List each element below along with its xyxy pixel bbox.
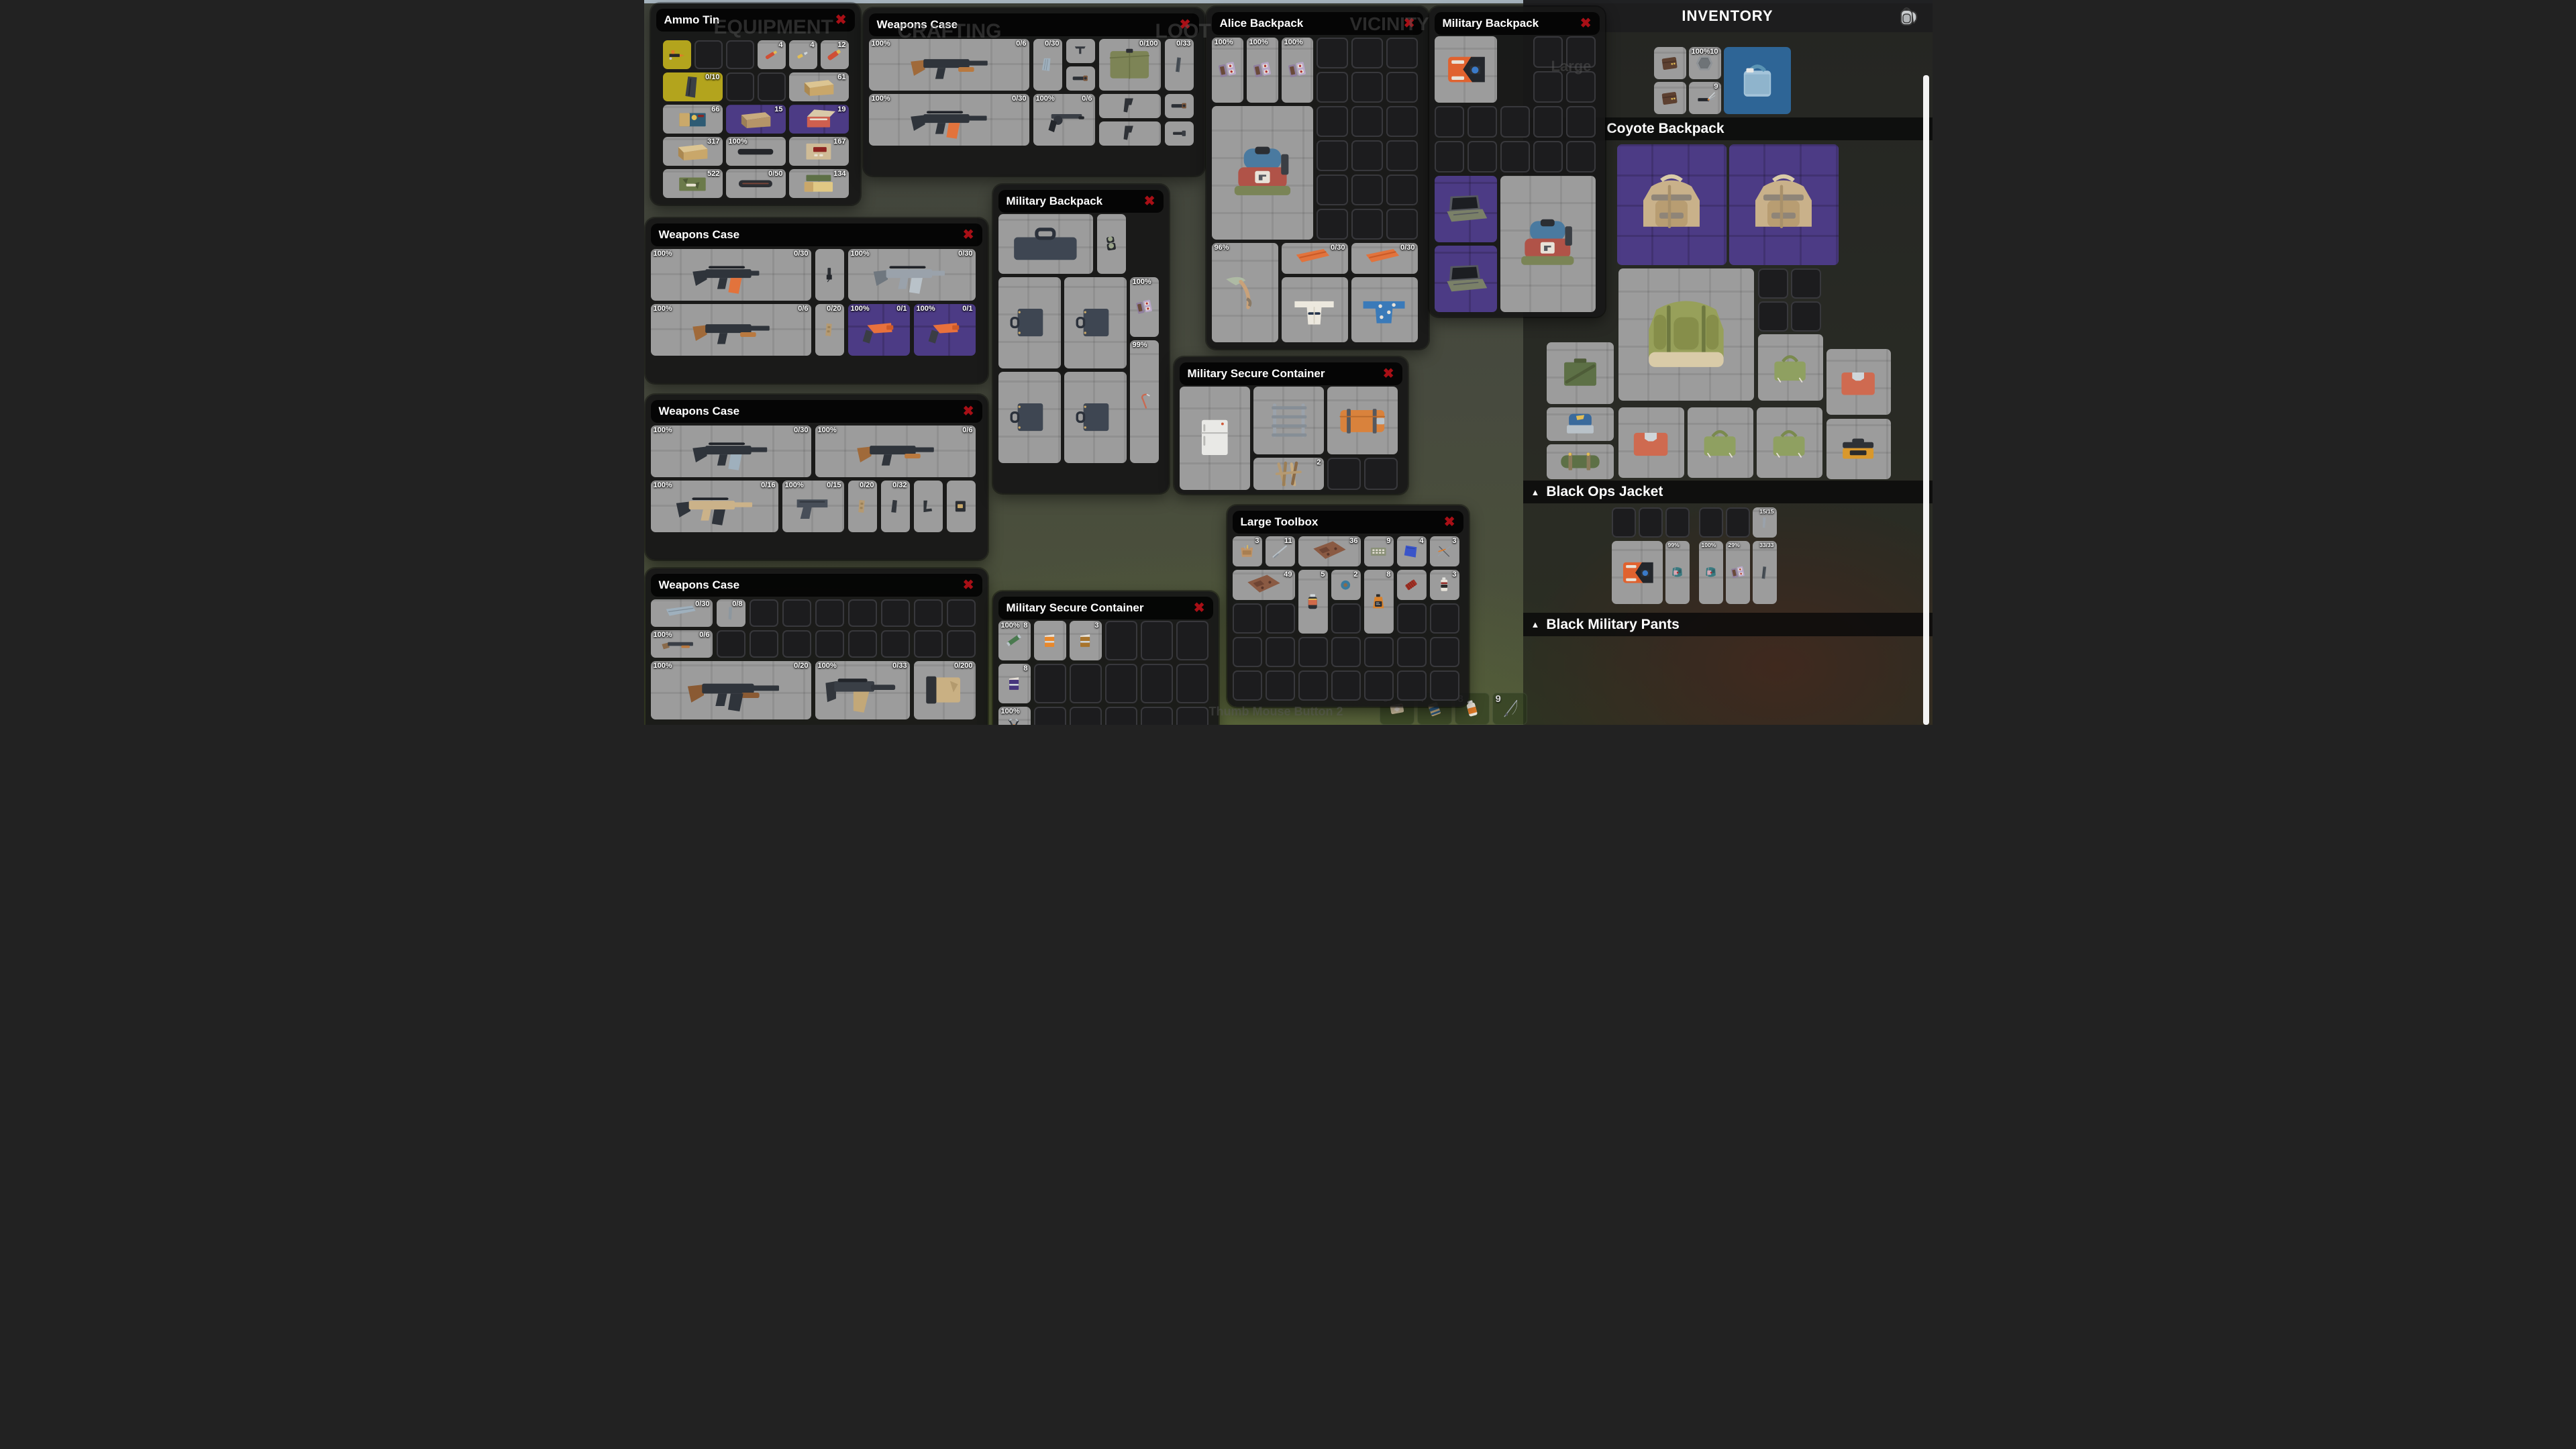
empty-slot[interactable]	[1566, 141, 1596, 172]
empty-slot[interactable]	[758, 72, 786, 101]
teal-pack-slot[interactable]: 100%	[1699, 541, 1723, 604]
close-icon[interactable]: ✖	[835, 13, 847, 27]
candy-orange-slot[interactable]	[1034, 621, 1066, 660]
empty-slot[interactable]	[1758, 268, 1788, 299]
empty-slot[interactable]	[1298, 637, 1328, 667]
count-label: 0/1	[962, 305, 972, 313]
bedroll-slot[interactable]	[1547, 444, 1614, 479]
flare-gun-slot[interactable]: 100%0/1	[914, 304, 976, 356]
rangefinder-icon	[664, 42, 690, 68]
empty-slot[interactable]	[1566, 71, 1596, 103]
count-label: 33/33	[1759, 542, 1773, 548]
mag-long-icon	[1753, 544, 1775, 601]
scope-slot[interactable]	[1165, 94, 1194, 118]
empty-slot[interactable]	[694, 40, 723, 69]
wallet-slot[interactable]	[1654, 82, 1686, 114]
empty-slot[interactable]	[717, 630, 745, 658]
briefcase-flat-icon	[1002, 217, 1089, 272]
close-icon[interactable]: ✖	[1194, 601, 1205, 615]
empty-slot[interactable]	[1317, 174, 1348, 205]
empty-slot[interactable]	[1612, 507, 1636, 538]
close-icon[interactable]: ✖	[1383, 367, 1394, 381]
mag-gray-straight-slot[interactable]: 0/8	[717, 599, 745, 627]
briefcase-slot[interactable]	[1064, 277, 1127, 368]
mag-tan-slot[interactable]: 0/20	[815, 304, 844, 356]
empty-slot[interactable]	[1665, 507, 1690, 538]
count-label: 66	[711, 105, 719, 113]
suppressor-slot[interactable]: 100%	[726, 137, 786, 166]
count-label: 0/33	[892, 662, 907, 670]
revolver-slot[interactable]: 100%0/6	[1033, 94, 1095, 146]
empty-slot[interactable]	[815, 630, 844, 658]
empty-slot[interactable]	[1351, 209, 1383, 240]
section-title: Coyote Backpack	[1607, 121, 1724, 137]
shirt-hawaiian-slot[interactable]	[1351, 277, 1418, 342]
window-header[interactable]: Alice Backpack✖	[1212, 12, 1423, 35]
empty-slot[interactable]	[1351, 174, 1383, 205]
empty-slot[interactable]	[1639, 507, 1663, 538]
med-cooler-slot[interactable]	[1612, 541, 1663, 604]
empty-slot[interactable]	[1386, 38, 1418, 68]
empty-slot[interactable]	[782, 599, 811, 627]
empty-slot[interactable]	[1327, 458, 1361, 490]
medkit-slot[interactable]: 100%	[1212, 38, 1243, 103]
empty-slot[interactable]	[1397, 603, 1427, 634]
fridge-slot[interactable]	[1180, 387, 1250, 490]
empty-slot[interactable]	[848, 599, 877, 627]
ak-pistol-slot[interactable]: 100%0/30	[651, 249, 811, 301]
empty-slot[interactable]	[1566, 36, 1596, 68]
empty-slot[interactable]	[1351, 38, 1383, 68]
empty-slot[interactable]	[1070, 707, 1102, 725]
quality-label: 100%	[818, 662, 837, 670]
flare-gun-icon	[916, 306, 973, 354]
shotgun-wood-icon	[875, 41, 1023, 89]
empty-slot[interactable]	[1141, 664, 1173, 703]
weapons-case-2-window: Weapons Case✖100%0/30100%0/30100%0/60/20…	[646, 218, 988, 383]
med-cooler-slot[interactable]	[1435, 36, 1497, 103]
empty-slot[interactable]	[1141, 621, 1173, 660]
empty-slot[interactable]	[1351, 140, 1383, 171]
crowbar-slot[interactable]: 99%	[1130, 340, 1159, 463]
whiskey-icon	[1365, 572, 1392, 631]
empty-slot[interactable]	[1500, 141, 1530, 172]
empty-slot[interactable]	[1386, 174, 1418, 205]
vector-slot[interactable]: 100%0/33	[815, 661, 910, 719]
count-label: 4	[778, 41, 782, 49]
flashlight-slot[interactable]	[1165, 121, 1194, 146]
pliers-slot[interactable]: 100%	[998, 707, 1031, 725]
ammo-box-blue-slot[interactable]: 66	[663, 105, 723, 134]
empty-slot[interactable]	[750, 630, 778, 658]
grip-icon	[1101, 95, 1158, 117]
teal-pack-icon	[1666, 544, 1688, 601]
empty-slot[interactable]	[914, 630, 943, 658]
mag-orange-slot[interactable]: 0/30	[1282, 243, 1348, 274]
medkit-slot[interactable]: 100%	[1282, 38, 1313, 103]
ammo-box-red-slot[interactable]: 19	[789, 105, 849, 134]
fal-icon	[657, 663, 805, 717]
count-label: 0/6	[798, 305, 808, 313]
backpack-coyote-slot[interactable]	[1729, 144, 1839, 265]
count-label: 15/15	[1759, 508, 1773, 515]
empty-slot[interactable]	[1533, 71, 1563, 103]
shelf-icon	[1256, 389, 1321, 452]
empty-slot[interactable]	[881, 599, 910, 627]
quality-label: 100%	[872, 95, 890, 103]
section-header-black-military-pants[interactable]: ▲Black Military Pants	[1523, 613, 1933, 636]
empty-slot[interactable]	[1758, 301, 1788, 332]
empty-slot[interactable]	[1500, 106, 1530, 138]
weapons-case-1-window: Weapons Case✖100%0/60/300/1000/33100%0/3…	[864, 8, 1204, 176]
tape-slot[interactable]: 2	[1331, 570, 1361, 600]
close-icon[interactable]: ✖	[1404, 17, 1415, 30]
mag-gray-slot[interactable]: 0/30	[1033, 39, 1062, 91]
mag-long-icon	[1166, 41, 1192, 89]
quality-label: 100%	[1215, 38, 1233, 46]
empty-slot[interactable]	[782, 630, 811, 658]
quality-label: 100%	[851, 305, 870, 313]
briefcase-slot[interactable]	[1064, 372, 1127, 463]
sidebar-scrollbar[interactable]	[1923, 75, 1929, 725]
robe-slot[interactable]	[1282, 277, 1348, 342]
empty-slot[interactable]	[1435, 141, 1464, 172]
empty-slot[interactable]	[1430, 603, 1459, 634]
hex-item-slot[interactable]: 100%10	[1689, 47, 1721, 79]
empty-slot[interactable]	[1364, 637, 1394, 667]
wood-scraps-slot[interactable]: 2	[1253, 458, 1324, 490]
empty-slot[interactable]	[1351, 72, 1383, 103]
collapse-icon[interactable]: ▲	[1531, 619, 1540, 630]
fishing-rod-slot[interactable]: 9	[1492, 693, 1527, 725]
mag-black-slot[interactable]: 0/32	[881, 481, 910, 532]
empty-slot[interactable]	[1386, 72, 1418, 103]
medkit-slot[interactable]: 100%	[1130, 277, 1159, 337]
crowbar-icon	[1131, 345, 1157, 458]
shell-big-slot[interactable]: 12	[821, 40, 849, 69]
window-title: Weapons Case	[659, 579, 740, 592]
candy-brown-slot[interactable]: 3	[1070, 621, 1102, 660]
empty-slot[interactable]	[1397, 637, 1427, 667]
shotgun-wood-slot[interactable]: 100%0/6	[815, 426, 976, 477]
rangefinder-slot[interactable]	[663, 40, 691, 69]
rod-slot[interactable]: 11	[1266, 536, 1295, 566]
empty-slot[interactable]	[1791, 301, 1821, 332]
count-label: 3	[1452, 537, 1456, 545]
ammo-can-slot[interactable]	[1547, 342, 1614, 404]
candy-orange-icon	[1035, 622, 1064, 658]
empty-slot[interactable]	[1233, 670, 1262, 701]
empty-slot[interactable]	[1726, 507, 1750, 538]
count-label: 0/100	[1139, 40, 1158, 48]
empty-slot[interactable]	[1105, 707, 1137, 725]
scythe-icon	[1214, 247, 1275, 338]
quality-label: 100%	[1692, 48, 1710, 56]
empty-slot[interactable]	[1791, 268, 1821, 299]
cooler-red-slot[interactable]	[1618, 407, 1684, 478]
wallet-slot[interactable]	[1654, 47, 1686, 79]
carbine-icon	[657, 428, 805, 475]
count-label: 0/30	[1400, 244, 1414, 252]
shell-red-slot[interactable]: 4	[758, 40, 786, 69]
mag-orange-slot[interactable]: 0/30	[1351, 243, 1418, 274]
scope-slot[interactable]	[1066, 66, 1095, 91]
count-label: 0/30	[695, 600, 709, 608]
laptop-slot[interactable]	[1435, 246, 1497, 312]
flare-green-slot[interactable]: 100%8	[998, 621, 1031, 660]
fal-slot[interactable]: 100%0/20	[651, 661, 811, 719]
close-icon[interactable]: ✖	[1180, 18, 1191, 32]
empty-slot[interactable]	[1317, 106, 1348, 137]
duffel-icon	[1690, 410, 1750, 475]
empty-slot[interactable]	[1266, 603, 1295, 634]
medkit-slot[interactable]: 100%	[1247, 38, 1278, 103]
sawnoff-slot[interactable]: 100%0/6	[651, 630, 713, 658]
toolbox-yellow-icon	[1828, 421, 1888, 477]
med-backpack-slot[interactable]	[1500, 176, 1596, 312]
empty-slot[interactable]	[1533, 106, 1563, 138]
drum-tan-slot[interactable]: 0/200	[914, 661, 976, 719]
empty-slot[interactable]	[815, 599, 844, 627]
mag-long-slot[interactable]: 0/33	[1165, 39, 1194, 91]
empty-slot[interactable]	[1351, 106, 1383, 137]
empty-slot[interactable]	[1364, 458, 1398, 490]
empty-slot[interactable]	[1105, 664, 1137, 703]
empty-slot[interactable]	[1331, 637, 1361, 667]
carbine-slot[interactable]: 100%0/30	[651, 426, 811, 477]
window-header[interactable]: Weapons Case✖	[651, 223, 982, 246]
multitool-slot[interactable]: 9	[1689, 82, 1721, 114]
empty-slot[interactable]	[1533, 141, 1563, 172]
metal-sheet-slot[interactable]: 49	[1233, 570, 1295, 600]
ak-rifle-slot[interactable]: 100%0/30	[869, 94, 1029, 146]
empty-slot[interactable]	[1317, 209, 1348, 240]
window-header[interactable]: Military Backpack✖	[1435, 12, 1600, 35]
duffel-icon	[1759, 410, 1819, 475]
empty-slot[interactable]	[750, 599, 778, 627]
quality-label: 100%	[917, 305, 935, 313]
empty-slot[interactable]	[947, 599, 976, 627]
empty-slot[interactable]	[1331, 670, 1361, 701]
flare-gun-slot[interactable]: 100%0/1	[848, 304, 910, 356]
briefcase-icon	[1000, 281, 1058, 364]
metal-sheet-slot[interactable]: 36	[1298, 536, 1361, 566]
candy-purple-slot[interactable]: 8	[998, 664, 1031, 703]
empty-slot[interactable]	[881, 630, 910, 658]
duffel-slot[interactable]	[1688, 407, 1753, 478]
quality-label: 100%	[654, 305, 672, 313]
empty-slot[interactable]	[1430, 670, 1459, 701]
empty-slot[interactable]	[1070, 664, 1102, 703]
grip-slot[interactable]	[1099, 121, 1161, 146]
weapons-case-3-window: Weapons Case✖100%0/30100%0/6100%0/16100%…	[646, 395, 988, 560]
collapse-icon[interactable]: ▲	[1531, 487, 1540, 497]
empty-slot[interactable]	[1233, 637, 1262, 667]
window-header[interactable]: Military Backpack✖	[998, 190, 1164, 213]
close-icon[interactable]: ✖	[1444, 515, 1455, 529]
empty-slot[interactable]	[1435, 106, 1464, 138]
bullet-slot[interactable]: 4	[789, 40, 817, 69]
bipod-slot[interactable]	[1066, 39, 1095, 63]
window-header[interactable]: Large Toolbox✖	[1233, 511, 1463, 534]
empty-slot[interactable]	[848, 630, 877, 658]
shotgun-wood-slot[interactable]: 100%0/6	[651, 304, 811, 356]
shelf-slot[interactable]	[1253, 387, 1324, 454]
empty-slot[interactable]	[1176, 707, 1208, 725]
mag-long-slot[interactable]: 33/33	[1753, 541, 1777, 604]
empty-slot[interactable]	[914, 599, 943, 627]
empty-slot[interactable]	[1467, 106, 1497, 138]
laser-box-slot[interactable]	[947, 481, 976, 532]
tarp-slot[interactable]: 4	[1397, 536, 1427, 566]
box-cardboard-slot[interactable]: 15	[726, 105, 786, 134]
empty-slot[interactable]	[726, 72, 754, 101]
medkit-slot[interactable]: 29%	[1726, 541, 1750, 604]
empty-slot[interactable]	[1105, 621, 1137, 660]
empty-slot[interactable]	[1176, 621, 1208, 660]
window-header[interactable]: Weapons Case✖	[651, 400, 982, 423]
empty-slot[interactable]	[1467, 141, 1497, 172]
empty-slot[interactable]	[1176, 664, 1208, 703]
count-label: 3	[1094, 621, 1098, 630]
dynamite-icon	[1398, 571, 1425, 599]
empty-slot[interactable]	[1364, 670, 1394, 701]
jug-slot[interactable]	[1724, 47, 1791, 114]
laptop-slot[interactable]	[1435, 176, 1497, 242]
mag-dark-slot[interactable]: 0/10	[663, 72, 723, 101]
window-header[interactable]: Ammo Tin✖	[656, 9, 855, 32]
alice-backpack-window: Alice Backpack✖100%100%100%96%0/300/30	[1206, 7, 1429, 349]
briefcase-slot[interactable]	[998, 372, 1061, 463]
window-header[interactable]: Weapons Case✖	[651, 574, 982, 597]
empty-slot[interactable]	[1430, 637, 1459, 667]
tube-slot[interactable]: 0/50	[726, 169, 786, 198]
window-header[interactable]: Military Secure Container✖	[998, 597, 1213, 619]
empty-slot[interactable]	[1233, 603, 1262, 634]
empty-slot[interactable]	[1331, 603, 1361, 634]
ammo-crate-slot[interactable]: 317	[663, 137, 723, 166]
empty-slot[interactable]	[1266, 670, 1295, 701]
dynamite-slot[interactable]	[1397, 570, 1427, 600]
section-header-black-ops-jacket[interactable]: ▲Black Ops Jacket	[1523, 481, 1933, 503]
tool-pouch-slot[interactable]: 3	[1233, 536, 1262, 566]
window-header[interactable]: Weapons Case✖	[869, 13, 1199, 36]
flare-gun-icon	[850, 306, 907, 354]
briefcase-slot[interactable]	[998, 277, 1061, 368]
empty-slot[interactable]	[1298, 670, 1328, 701]
rifle-tan-icon	[656, 483, 773, 530]
tool-vert-slot[interactable]	[815, 249, 844, 301]
cooler-blue-slot[interactable]	[1547, 407, 1614, 441]
empty-slot[interactable]	[1317, 140, 1348, 171]
empty-slot[interactable]	[1141, 707, 1173, 725]
count-label: 36	[1349, 537, 1357, 545]
close-icon[interactable]: ✖	[963, 579, 974, 592]
count-label: 11	[1284, 537, 1292, 545]
empty-slot[interactable]	[1034, 664, 1066, 703]
pistol-slot[interactable]: 100%0/15	[782, 481, 844, 532]
backpack-green-slot[interactable]	[1618, 268, 1754, 401]
ammo-crate-slot[interactable]: 61	[789, 72, 849, 101]
empty-slot[interactable]	[1533, 36, 1563, 68]
count-label: 167	[833, 138, 845, 146]
close-icon[interactable]: ✖	[963, 228, 974, 242]
close-icon[interactable]: ✖	[1580, 17, 1592, 30]
scythe-slot[interactable]: 96%	[1212, 243, 1278, 342]
med-backpack-icon	[1216, 111, 1309, 234]
ammo-box-green-slot[interactable]: 134	[789, 169, 849, 198]
count-label: 0/10	[705, 73, 719, 81]
shotgun-wood-icon	[821, 428, 969, 475]
empty-slot[interactable]	[1317, 38, 1348, 68]
sticks-slot[interactable]: 3	[1430, 536, 1459, 566]
count-label: 317	[707, 138, 719, 146]
bedroll-icon	[1549, 446, 1611, 478]
med-backpack-icon	[1504, 181, 1592, 307]
mag-gray-curved-slot[interactable]: 0/30	[651, 599, 713, 627]
bottle-dark-slot[interactable]: 5	[1298, 570, 1328, 634]
empty-slot[interactable]	[1386, 106, 1418, 137]
empty-slot[interactable]	[1386, 209, 1418, 240]
shotgun-wood-slot[interactable]: 100%0/6	[869, 39, 1029, 91]
count-label: 0/30	[1012, 95, 1026, 103]
backpack-icon[interactable]	[1898, 5, 1920, 28]
quality-label: 100%	[654, 662, 672, 670]
gun-oil-slot[interactable]: 3	[1430, 570, 1459, 600]
close-icon[interactable]: ✖	[963, 405, 974, 418]
stock-slot[interactable]	[914, 481, 943, 532]
whiskey-slot[interactable]: 8	[1364, 570, 1394, 634]
circuit-board-slot[interactable]: 9	[1364, 536, 1394, 566]
grip-slot[interactable]	[1099, 94, 1161, 118]
empty-slot[interactable]	[1397, 670, 1427, 701]
trunk-orange-slot[interactable]	[1327, 387, 1398, 454]
section-title: Black Military Pants	[1546, 617, 1679, 633]
ammo-box-camo-slot[interactable]: 522	[663, 169, 723, 198]
empty-slot[interactable]	[1566, 106, 1596, 138]
cooler-blue-icon	[1549, 409, 1611, 440]
briefcase-flat-slot[interactable]	[998, 214, 1093, 274]
mag-black-icon	[882, 483, 909, 530]
empty-slot[interactable]	[1699, 507, 1723, 538]
detonator-slot[interactable]: 167	[789, 137, 849, 166]
close-icon[interactable]: ✖	[1144, 195, 1155, 208]
count-label: 0/30	[794, 426, 808, 434]
med-backpack-slot[interactable]	[1212, 106, 1313, 240]
rifle-tan-slot[interactable]: 100%0/16	[651, 481, 778, 532]
duffel-slot[interactable]	[1757, 407, 1822, 478]
binoculars-slot[interactable]	[1097, 214, 1126, 274]
backpack-coyote-slot[interactable]	[1617, 144, 1727, 265]
teal-pack-slot[interactable]: 99%	[1665, 541, 1690, 604]
toolbox-yellow-slot[interactable]	[1826, 419, 1891, 479]
empty-slot[interactable]	[947, 630, 976, 658]
empty-slot[interactable]	[1266, 637, 1295, 667]
count-label: 0/6	[1082, 95, 1092, 103]
quality-label: 100%	[1036, 95, 1055, 103]
mag-silver-slot[interactable]: 15/15	[1753, 507, 1777, 538]
empty-slot[interactable]	[1034, 707, 1066, 725]
empty-slot[interactable]	[726, 40, 754, 69]
mag-tan-slot[interactable]: 0/20	[848, 481, 877, 532]
smg-gray-slot[interactable]: 100%0/30	[848, 249, 976, 301]
cooler-red-slot[interactable]	[1826, 349, 1891, 415]
window-header[interactable]: Military Secure Container✖	[1180, 362, 1402, 385]
duffel-slot[interactable]	[1758, 334, 1823, 401]
empty-slot[interactable]	[1386, 140, 1418, 171]
drum-green-slot[interactable]: 0/100	[1099, 39, 1161, 91]
empty-slot[interactable]	[1317, 72, 1348, 103]
